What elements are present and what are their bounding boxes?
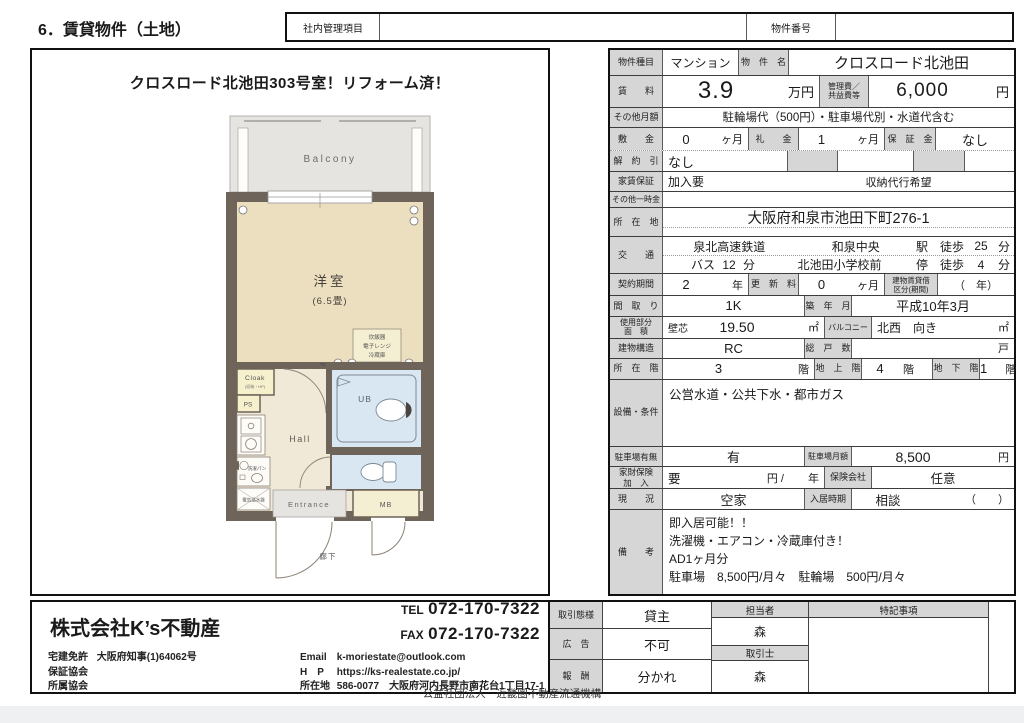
kitchen-units [237, 415, 265, 455]
lease-type-value: （ 年） [938, 274, 1014, 294]
above-ground-label: 地 上 階 [815, 359, 862, 378]
above-ground-unit: 階 [898, 359, 933, 378]
floor-plan: Balcony 洋室 (6.5畳) 炊飯器 電子レンジ 冷蔵庫 [226, 114, 434, 594]
type-label: 物件種目 [610, 50, 663, 75]
row-type-name: 物件種目 マンション 物 件 名 クロスロード北池田 [610, 50, 1014, 76]
lease-type-label-2: 区分(期間) [894, 285, 929, 294]
cloak-area [237, 369, 274, 395]
row-deposit: 敷 金 0 ヶ月 礼 金 1 ヶ月 保 証 金 なし [610, 128, 1014, 151]
row-other-monthly: その他月額 駐輪場代（500円）・駐車場代別・水道代含む [610, 108, 1014, 128]
row-onetime: その他一時金 [610, 192, 1014, 208]
station-walk-unit: 分 [994, 238, 1014, 255]
mgmt-fee-label-1: 管理費／ [828, 82, 860, 92]
deposit-unit: ヶ月 [709, 128, 749, 150]
entrance-label: Entrance [288, 500, 330, 509]
corridor-label: 廊下 [320, 551, 337, 561]
internal-management-field [380, 14, 746, 40]
remarks-line-2: 洗濯機・エアコン・冷蔵庫付き！ [669, 532, 1008, 550]
header-management-box: 社内管理項目 物件番号 [285, 12, 1014, 42]
address-line2 [663, 228, 1014, 236]
structure-value: RC [663, 339, 805, 358]
units-unit: 戸 [978, 339, 1014, 358]
row-layout: 間 取 り 1K 築 年 月 平成10年3月 [610, 296, 1014, 317]
remarks-line-4: 駐車場 8,500円/月々 駐輪場 500円/月々 [669, 568, 1008, 586]
row-transit: 交 通 泉北高速鉄道 和泉中央 駅 徒歩 25 分 バス 12 分 北池田小学校… [610, 237, 1014, 274]
layout-value: 1K [663, 296, 805, 316]
row-cancellation: 解 約 引 なし [610, 151, 1014, 171]
floor-plan-box: クロスロード北池田303号室！リフォーム済！ Balcony 洋室 (6.5畳) [30, 48, 550, 596]
hp-value[interactable]: https://ks-realestate.co.jp/ [337, 667, 460, 678]
insurance-unit-2: 年 [784, 467, 825, 487]
renewal-unit: ヶ月 [844, 274, 885, 294]
internal-management-label: 社内管理項目 [287, 14, 380, 40]
row-structure: 建物構造 RC 総 戸 数 戸 [610, 339, 1014, 359]
built-value: 平成10年3月 [852, 296, 1014, 316]
rail-line: 泉北高速鉄道 [663, 238, 796, 255]
rent-value: 3.9 [663, 76, 769, 106]
bus-stop: 北池田小学校前 [763, 256, 916, 273]
mgmt-fee-unit: 円 [976, 76, 1014, 106]
tel-number: 072-170-7322 [428, 599, 540, 618]
cancellation-label: 解 約 引 [610, 151, 663, 170]
rent-unit: 万円 [769, 76, 820, 106]
mgmt-fee-value: 6,000 [869, 76, 976, 106]
other-monthly-value: 駐輪場代（500円）・駐車場代別・水道代含む [663, 108, 1014, 127]
parking-label: 駐車場有無 [610, 447, 663, 466]
below-ground-label: 地 下 階 [933, 359, 980, 378]
cancellation-spacer-3 [914, 151, 965, 170]
cloak-label: Cloak [245, 375, 265, 382]
row-remarks: 備 考 即入居可能！！ 洗濯機・エアコン・冷蔵庫付き！ AD1ヶ月分 駐車場 8… [610, 510, 1014, 594]
deposit-value: 0 [663, 128, 709, 150]
structure-label: 建物構造 [610, 339, 663, 358]
station-walk-min: 25 [968, 239, 994, 253]
address-label: 所 在 地 [610, 208, 663, 236]
mgmt-fee-label: 管理費／ 共益費等 [820, 76, 869, 106]
area-method: 壁芯 [663, 317, 703, 337]
remarks-line-3: AD1ヶ月分 [669, 550, 1008, 568]
lease-type-label-1: 建物賃貸借 [892, 276, 930, 285]
bottom-edge [0, 706, 1024, 723]
insurance-label-1: 家財保険 [619, 467, 653, 477]
movein-paren: （ ） [924, 489, 1014, 509]
hp-row: H P https://ks-realestate.co.jp/ [300, 666, 545, 681]
agency-tel-row: TEL 072-170-7322 [400, 599, 540, 619]
units-value [852, 339, 978, 358]
name-label: 物 件 名 [739, 50, 789, 75]
western-room-label: 洋室 [314, 273, 347, 289]
mgmt-fee-label-2: 共益費等 [828, 91, 860, 101]
balcony-area-unit: ㎡ [976, 317, 1014, 337]
balcony-dir-value: 北西 向き [872, 317, 976, 337]
floor-label: 所 在 階 [610, 359, 663, 378]
stop-walk-label: 停 徒歩 [916, 256, 968, 273]
appliance-rice-cooker: 炊飯器 [369, 333, 386, 341]
deal-mode-value: 貸主 [603, 602, 711, 629]
laundry-label: 洗濯パン [248, 465, 267, 472]
bus-min: 12 [715, 258, 743, 272]
insurance-label: 家財保険 加 入 [610, 467, 663, 487]
key-money-label: 礼 金 [749, 128, 799, 150]
email-row: Email k-moriestate@outlook.com [300, 651, 545, 666]
document-page: 6．賃貸物件（土地） 社内管理項目 物件番号 クロスロード北池田303号室！リフ… [0, 0, 1024, 723]
row-address: 所 在 地 大阪府和泉市池田下町276-1 [610, 208, 1014, 237]
parking-fee-unit: 円 [974, 447, 1014, 466]
insurance-value: 要 [663, 467, 729, 487]
property-no-field [836, 14, 1012, 40]
insurer-label: 保険会社 [825, 467, 872, 487]
guarantee-money-value: なし [936, 128, 1014, 150]
footer-org: 公益社団法人 近畿圏不動産流通機構 [0, 686, 1024, 701]
floor-unit: 階 [774, 359, 815, 378]
address-value: 大阪府和泉市池田下町276-1 [663, 208, 1014, 228]
contract-unit: 年 [709, 274, 749, 294]
key-money-value: 1 [799, 128, 844, 150]
parking-fee-value: 8,500 [852, 447, 974, 466]
status-label: 現 況 [610, 489, 663, 509]
row-floors: 所 在 階 3 階 地 上 階 4 階 地 下 階 1 階 [610, 359, 1014, 379]
cancellation-spacer-4 [965, 151, 1014, 170]
built-label: 築 年 月 [805, 296, 852, 316]
status-value: 空家 [663, 489, 805, 509]
station: 和泉中央 [796, 238, 916, 255]
rent-guarantee-value: 加入要 [663, 172, 783, 191]
name-value: クロスロード北池田 [789, 50, 1014, 75]
stop-walk-unit: 分 [994, 256, 1014, 273]
guarantee-money-label: 保 証 金 [885, 128, 936, 150]
western-room-size: (6.5畳) [312, 296, 347, 307]
contract-value: 2 [663, 274, 709, 294]
rent-label: 賃 料 [610, 76, 663, 106]
balcony-label: Balcony [303, 154, 356, 165]
remarks-line-1: 即入居可能！！ [669, 514, 1008, 532]
unit-bath: UB [331, 369, 422, 448]
parking-fee-label: 駐車場月額 [805, 447, 852, 466]
facilities-label: 設備・条件 [610, 380, 663, 446]
area-label-1: 使用部分 [620, 318, 652, 328]
transit-line-1: 泉北高速鉄道 和泉中央 駅 徒歩 25 分 [663, 237, 1014, 256]
rent-guarantee-label: 家賃保証 [610, 172, 663, 191]
fax-label: FAX [400, 628, 423, 642]
bus-label: バス [663, 256, 715, 273]
appliance-microwave: 電子レンジ [363, 343, 391, 350]
above-ground-value: 4 [862, 359, 898, 378]
fax-number: 072-170-7322 [428, 624, 540, 643]
onetime-value [663, 192, 1014, 207]
onetime-label: その他一時金 [610, 192, 663, 207]
layout-label: 間 取 り [610, 296, 663, 316]
guarantee-assoc-row: 保証協会 [48, 666, 197, 681]
row-area: 使用部分 面 積 壁芯 19.50 ㎡ バルコニー 北西 向き ㎡ [610, 317, 1014, 338]
mb-door-arc [372, 521, 405, 555]
insurance-unit: 円 / [729, 467, 784, 487]
station-walk-label: 駅 徒歩 [916, 238, 968, 255]
license-row: 宅建免許 大阪府知事(1)64062号 [48, 651, 197, 666]
property-no-label: 物件番号 [746, 14, 836, 40]
deal-mode-label: 取引態様 [550, 602, 602, 629]
floor-value: 3 [663, 359, 774, 378]
row-parking: 駐車場有無 有 駐車場月額 8,500 円 [610, 447, 1014, 467]
hall-label: Hall [289, 434, 311, 444]
row-contract: 契約期間 2 年 更 新 料 0 ヶ月 建物賃貸借 区分(期間) （ 年） [610, 274, 1014, 295]
agency-fax-row: FAX 072-170-7322 [400, 624, 540, 644]
stop-walk-min: 4 [968, 258, 994, 272]
cancellation-value: なし [663, 151, 788, 170]
insurer-value: 任意 [872, 467, 1014, 487]
deal-ad-value: 不可 [603, 629, 711, 660]
cancellation-spacer-2 [838, 151, 914, 170]
type-value: マンション [663, 50, 739, 75]
below-ground-value: 1 [980, 359, 987, 378]
ps-label: PS [244, 402, 253, 409]
transit-label: 交 通 [610, 237, 663, 273]
tel-label: TEL [401, 603, 424, 617]
ub-label: UB [358, 394, 372, 404]
water-heater-label: 電気温水器 [242, 497, 265, 504]
remarks-label: 備 考 [610, 510, 663, 594]
row-rent: 賃 料 3.9 万円 管理費／ 共益費等 6,000 円 [610, 76, 1014, 107]
bus-min-unit: 分 [743, 256, 763, 273]
row-facilities: 設備・条件 公営水道・公共下水・都市ガス [610, 380, 1014, 447]
license-number: 大阪府知事(1)64062号 [97, 652, 197, 663]
mb-label: MB [380, 502, 393, 509]
movein-value: 相談 [852, 489, 924, 509]
deposit-label: 敷 金 [610, 128, 663, 150]
transit-line-2: バス 12 分 北池田小学校前 停 徒歩 4 分 [663, 256, 1014, 273]
deal-right-spacer [989, 602, 1014, 692]
insurance-label-2: 加 入 [623, 478, 649, 488]
hp-label: H P [300, 666, 334, 681]
row-status: 現 況 空家 入居時期 相談 （ ） [610, 489, 1014, 510]
contract-label: 契約期間 [610, 274, 663, 294]
parking-value: 有 [663, 447, 805, 466]
renewal-value: 0 [799, 274, 844, 294]
email-label: Email [300, 651, 334, 666]
staff-value: 森 [712, 618, 808, 646]
plan-headline: クロスロード北池田303号室！リフォーム済！ [32, 72, 548, 93]
rent-guarantee-note: 収納代行希望 [783, 172, 1014, 191]
license-label: 宅建免許 [48, 652, 88, 663]
area-value: 19.50 [703, 317, 771, 337]
staff-header: 担当者 [712, 602, 808, 618]
laundry-pan: 洗濯パン [235, 457, 271, 486]
below-ground-unit: 階 [987, 359, 1021, 378]
deal-ad-label: 広 告 [550, 629, 602, 660]
deal-table: 取引態様 広 告 報 酬 貸主 不可 分かれ 担当者 森 取引士 森 特記事項 [548, 600, 1016, 694]
property-spec-table: 物件種目 マンション 物 件 名 クロスロード北池田 賃 料 3.9 万円 管理… [608, 48, 1016, 596]
area-unit: ㎡ [771, 317, 825, 337]
other-monthly-label: その他月額 [610, 108, 663, 127]
units-label: 総 戸 数 [805, 339, 852, 358]
area-label: 使用部分 面 積 [610, 317, 663, 337]
agency-name: 株式会社K’s不動産 [50, 612, 220, 641]
entrance-door-arc [276, 521, 332, 578]
row-rent-guarantee: 家賃保証 加入要 収納代行希望 [610, 172, 1014, 192]
toilet-room [331, 454, 422, 490]
water-heater: 電気温水器 [237, 488, 270, 510]
key-money-unit: ヶ月 [844, 128, 885, 150]
lease-type-label: 建物賃貸借 区分(期間) [885, 274, 938, 294]
balcony-dir-label: バルコニー [825, 317, 872, 337]
cloak-sub-label: (収納・HP) [245, 383, 266, 389]
agent-header: 取引士 [712, 646, 808, 661]
special-notes-value [809, 618, 988, 692]
special-notes-header: 特記事項 [809, 602, 988, 618]
appliance-fridge: 冷蔵庫 [369, 351, 386, 359]
page-title: 6．賃貸物件（土地） [38, 16, 191, 40]
facilities-value: 公営水道・公共下水・都市ガス [663, 380, 1014, 446]
cancellation-spacer-1 [788, 151, 838, 170]
renewal-label: 更 新 料 [749, 274, 799, 294]
row-insurance: 家財保険 加 入 要 円 / 年 保険会社 任意 [610, 467, 1014, 488]
movein-label: 入居時期 [805, 489, 852, 509]
agency-box: 株式会社K’s不動産 TEL 072-170-7322 FAX 072-170-… [30, 600, 550, 694]
area-label-2: 面 積 [624, 327, 648, 337]
email-value[interactable]: k-moriestate@outlook.com [337, 652, 466, 663]
